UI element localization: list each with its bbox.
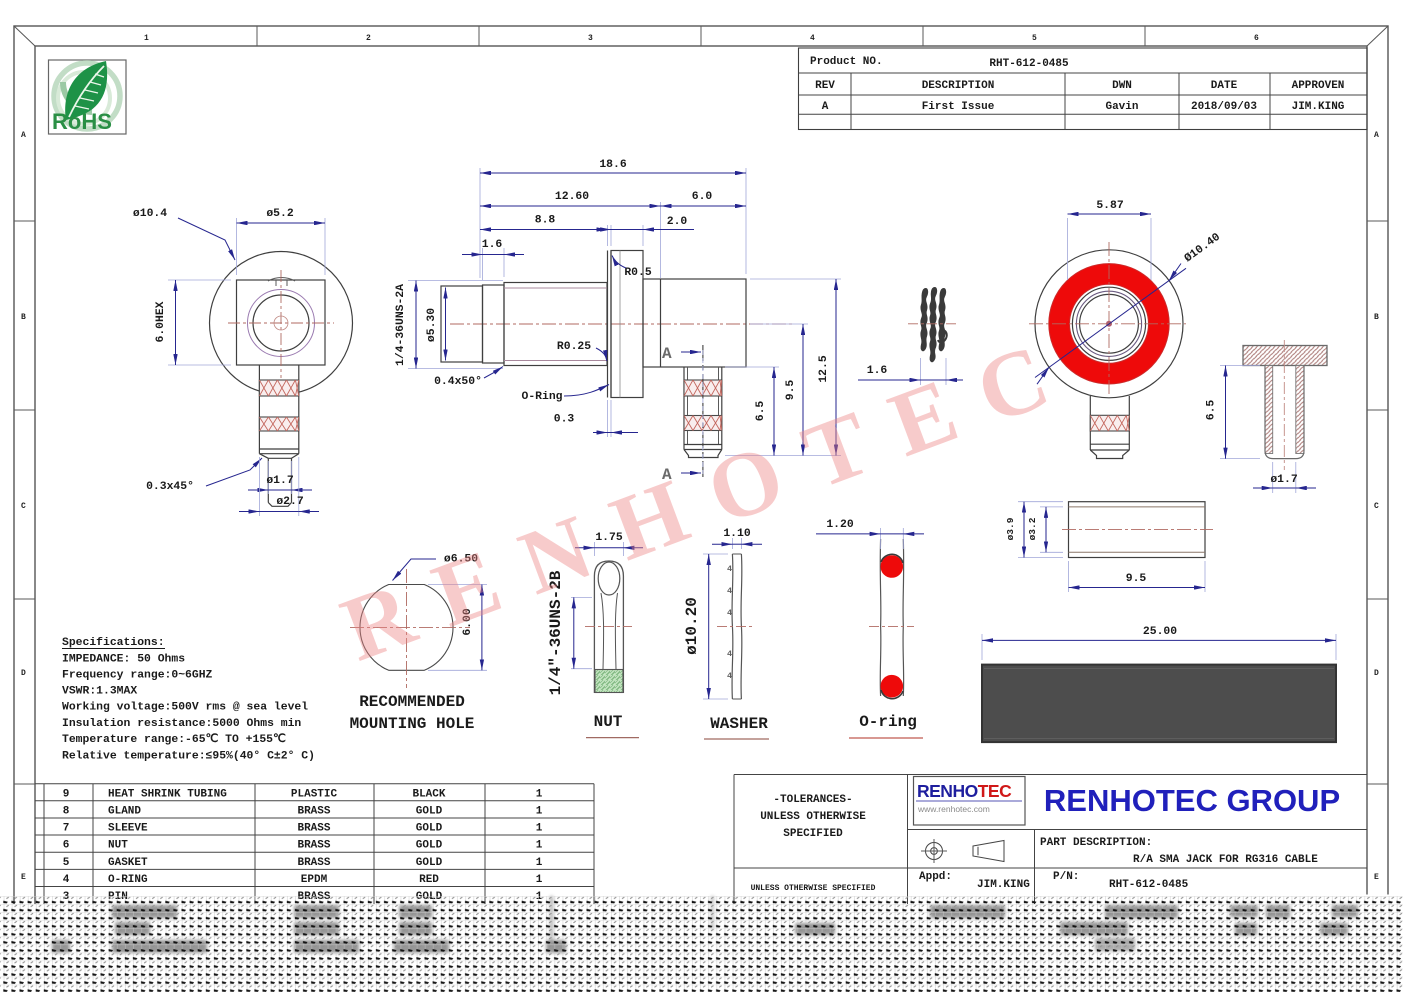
svg-text:Product NO.: Product NO.: [810, 56, 883, 68]
svg-text:1: 1: [144, 34, 149, 43]
svg-text:BRASS: BRASS: [297, 840, 330, 852]
svg-text:E: E: [21, 873, 26, 882]
svg-text:6.5: 6.5: [1206, 400, 1218, 421]
svg-text:www.renhotec.com: www.renhotec.com: [917, 804, 990, 814]
svg-text:B: B: [1374, 313, 1379, 322]
svg-text:WASHER: WASHER: [710, 715, 768, 733]
svg-text:Working voltage:500V rms @ sea: Working voltage:500V rms @ sea level: [62, 702, 308, 714]
svg-text:GOLD: GOLD: [416, 806, 443, 818]
svg-text:RHT-612-0485: RHT-612-0485: [989, 58, 1069, 70]
svg-text:4: 4: [810, 34, 815, 43]
svg-text:E: E: [1374, 873, 1379, 882]
svg-text:D: D: [1374, 669, 1379, 678]
svg-text:D: D: [21, 669, 26, 678]
svg-text:PART DESCRIPTION:: PART DESCRIPTION:: [1040, 837, 1152, 849]
svg-text:RHT-612-0485: RHT-612-0485: [1109, 879, 1189, 891]
svg-text:GLAND: GLAND: [108, 806, 141, 818]
svg-text:BRASS: BRASS: [297, 857, 330, 869]
svg-text:ø3.9: ø3.9: [1005, 517, 1016, 540]
svg-text:4: 4: [727, 649, 732, 659]
svg-text:0.3x45°: 0.3x45°: [146, 481, 194, 493]
svg-text:Gavin: Gavin: [1105, 101, 1138, 113]
svg-text:NUT: NUT: [108, 840, 128, 852]
svg-text:RENHOTEC GROUP: RENHOTEC GROUP: [1044, 783, 1340, 818]
svg-text:HEAT SHRINK TUBING: HEAT SHRINK TUBING: [108, 789, 227, 801]
svg-text:4: 4: [727, 564, 732, 574]
svg-text:NUT: NUT: [594, 713, 623, 731]
svg-text:C: C: [1374, 502, 1379, 511]
svg-text:6.0: 6.0: [692, 191, 713, 203]
svg-text:-TOLERANCES-: -TOLERANCES-: [773, 794, 852, 806]
svg-text:8: 8: [63, 806, 70, 818]
svg-text:ø5.2: ø5.2: [266, 208, 294, 220]
svg-text:R0.25: R0.25: [557, 341, 591, 353]
svg-text:25.00: 25.00: [1143, 626, 1177, 638]
svg-text:GASKET: GASKET: [108, 857, 148, 869]
svg-text:R0.5: R0.5: [624, 267, 652, 279]
svg-text:2: 2: [366, 34, 371, 43]
svg-text:Insulation resistance:5000 Ohm: Insulation resistance:5000 Ohms min: [62, 718, 301, 730]
svg-text:JIM.KING: JIM.KING: [977, 879, 1030, 891]
svg-text:6: 6: [63, 840, 70, 852]
svg-text:ø1.7: ø1.7: [1270, 474, 1298, 486]
svg-text:JIM.KING: JIM.KING: [1292, 101, 1345, 113]
svg-text:VSWR:1.3MAX: VSWR:1.3MAX: [62, 686, 137, 698]
svg-text:PLASTIC: PLASTIC: [291, 789, 338, 801]
svg-text:BLACK: BLACK: [412, 789, 445, 801]
svg-text:B: B: [21, 313, 26, 322]
svg-text:DESCRIPTION: DESCRIPTION: [922, 80, 995, 92]
svg-text:1.6: 1.6: [867, 365, 888, 377]
svg-text:Appd:: Appd:: [919, 871, 952, 883]
svg-text:2018/09/03: 2018/09/03: [1191, 101, 1257, 113]
svg-text:O-Ring: O-Ring: [521, 391, 562, 403]
svg-text:P/N:: P/N:: [1053, 871, 1079, 883]
svg-text:4: 4: [727, 586, 732, 596]
svg-text:ø2.7: ø2.7: [276, 496, 304, 508]
svg-text:9: 9: [63, 789, 70, 801]
svg-text:4: 4: [727, 608, 732, 618]
svg-text:O-ring: O-ring: [859, 713, 917, 731]
svg-text:9.5: 9.5: [785, 380, 797, 401]
svg-text:RED: RED: [419, 874, 439, 886]
svg-text:12.5: 12.5: [818, 355, 830, 383]
svg-text:9.5: 9.5: [1126, 573, 1147, 585]
svg-text:2.0: 2.0: [667, 216, 688, 228]
svg-text:GOLD: GOLD: [416, 823, 443, 835]
svg-text:RECOMMENDED: RECOMMENDED: [359, 693, 465, 711]
svg-text:1: 1: [536, 874, 543, 886]
svg-text:1: 1: [536, 857, 543, 869]
svg-text:EPDM: EPDM: [301, 874, 328, 886]
svg-text:Frequency range:0~6GHZ: Frequency range:0~6GHZ: [62, 670, 213, 682]
svg-text:6.5: 6.5: [755, 401, 767, 422]
svg-text:6: 6: [1254, 34, 1259, 43]
svg-text:12.60: 12.60: [555, 191, 589, 203]
svg-text:1: 1: [536, 823, 543, 835]
svg-text:4: 4: [727, 671, 732, 681]
svg-text:18.6: 18.6: [599, 159, 627, 171]
svg-text:GOLD: GOLD: [416, 857, 443, 869]
svg-text:Relative temperature:≤95%(40°: Relative temperature:≤95%(40° C±2° C): [62, 751, 315, 763]
svg-text:DWN: DWN: [1112, 80, 1132, 92]
svg-text:A: A: [822, 101, 829, 113]
svg-text:REV: REV: [815, 80, 835, 92]
svg-text:7: 7: [63, 823, 70, 835]
svg-text:4: 4: [63, 874, 70, 886]
svg-text:RoHS: RoHS: [52, 109, 112, 134]
svg-text:6.0HEX: 6.0HEX: [155, 301, 167, 342]
svg-text:5.87: 5.87: [1096, 200, 1124, 212]
svg-text:ø1.7: ø1.7: [266, 475, 294, 487]
svg-text:O-RING: O-RING: [108, 874, 148, 886]
svg-text:A: A: [1374, 131, 1379, 140]
svg-text:UNLESS OTHERWISE SPECIFIED: UNLESS OTHERWISE SPECIFIED: [751, 884, 876, 893]
svg-text:ø5.30: ø5.30: [426, 308, 438, 342]
svg-text:A: A: [662, 345, 672, 363]
svg-text:A: A: [21, 131, 26, 140]
svg-text:IMPEDANCE: 50 Ohms: IMPEDANCE: 50 Ohms: [62, 654, 185, 666]
svg-text:ø10.20: ø10.20: [683, 597, 701, 655]
svg-text:0.3: 0.3: [554, 414, 575, 426]
svg-text:BRASS: BRASS: [297, 823, 330, 835]
svg-text:1.20: 1.20: [826, 519, 854, 531]
svg-text:1: 1: [536, 789, 543, 801]
svg-text:1: 1: [536, 840, 543, 852]
svg-text:8.8: 8.8: [535, 215, 556, 227]
svg-text:First Issue: First Issue: [922, 101, 995, 113]
svg-text:SLEEVE: SLEEVE: [108, 823, 148, 835]
svg-text:R/A SMA JACK FOR RG316 CABLE: R/A SMA JACK FOR RG316 CABLE: [1133, 854, 1318, 866]
svg-text:1.6: 1.6: [482, 239, 503, 251]
svg-text:5: 5: [1032, 34, 1037, 43]
svg-text:3: 3: [588, 34, 593, 43]
svg-text:UNLESS OTHERWISE: UNLESS OTHERWISE: [760, 811, 866, 823]
svg-text:GOLD: GOLD: [416, 840, 443, 852]
svg-text:Specifications:: Specifications:: [62, 637, 165, 649]
svg-text:5: 5: [63, 857, 70, 869]
svg-text:0.4x50°: 0.4x50°: [434, 376, 482, 388]
svg-text:C: C: [21, 502, 26, 511]
svg-text:SPECIFIED: SPECIFIED: [783, 828, 843, 840]
svg-text:RENHOTEC: RENHOTEC: [917, 781, 1012, 801]
svg-text:ø10.4: ø10.4: [133, 208, 167, 220]
svg-text:BRASS: BRASS: [297, 806, 330, 818]
svg-text:Temperature range:-65℃ TO +155: Temperature range:-65℃ TO +155℃: [62, 733, 286, 746]
svg-text:MOUNTING HOLE: MOUNTING HOLE: [350, 715, 475, 733]
svg-text:1/4-36UNS-2A: 1/4-36UNS-2A: [395, 284, 407, 366]
svg-text:ø3.2: ø3.2: [1027, 517, 1038, 540]
svg-text:DATE: DATE: [1211, 80, 1238, 92]
svg-text:1: 1: [536, 806, 543, 818]
svg-text:APPROVEN: APPROVEN: [1292, 80, 1345, 92]
